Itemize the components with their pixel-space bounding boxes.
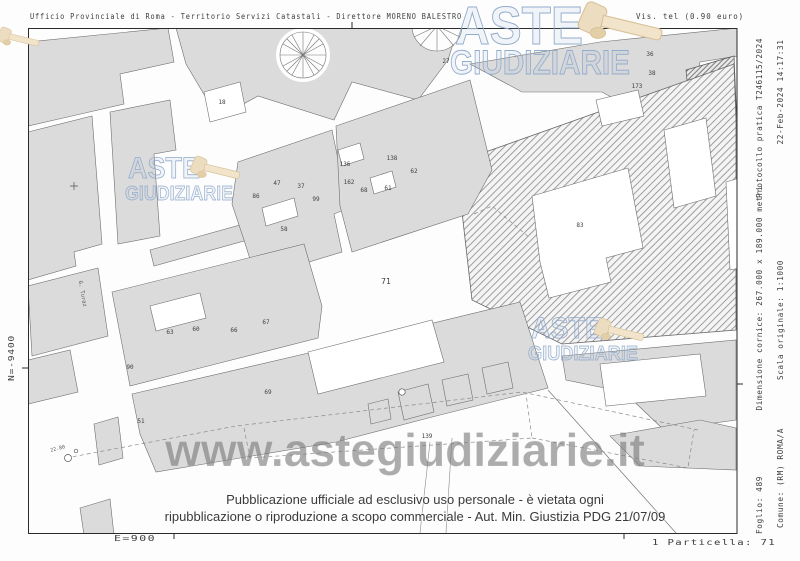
watermark-giudiziarie-text: GIUDIZIARIE bbox=[450, 44, 630, 82]
watermark-aste-text: ASTE bbox=[531, 312, 603, 345]
margin-particella: 1 Particella: 71 bbox=[652, 538, 776, 547]
parcel-label-37: 37 bbox=[297, 183, 305, 190]
parcel-label-83: 83 bbox=[576, 222, 584, 229]
cadastral-map-page: Ufficio Provinciale di Roma - Territorio… bbox=[0, 0, 800, 561]
parcel-label-68: 68 bbox=[360, 187, 368, 194]
parcel-label-60: 60 bbox=[192, 326, 200, 333]
parcel-label-71: 71 bbox=[381, 277, 391, 286]
parcel-label-58: 58 bbox=[280, 226, 288, 233]
parcel-label-66: 66 bbox=[230, 327, 238, 334]
parcel-label-63: 63 bbox=[166, 329, 174, 336]
parcel-label-138: 138 bbox=[387, 155, 398, 162]
margin-foglio: Foglio: 489 bbox=[755, 476, 764, 534]
margin-protocollo: Protocollo pratica T246115/2024 bbox=[755, 38, 764, 198]
margin-scale: Scala originale: 1:1000 bbox=[776, 260, 785, 380]
disclaimer-line1: Pubblicazione ufficiale ad esclusivo uso… bbox=[90, 491, 740, 508]
watermark-giudiziarie-text: GIUDIZIARIE bbox=[125, 183, 233, 205]
margin-comune: Comune: (RM) ROMA/A bbox=[776, 428, 785, 528]
disclaimer: Pubblicazione ufficiale ad esclusivo uso… bbox=[90, 491, 740, 525]
watermark-giudiziarie-text: GIUDIZIARIE bbox=[528, 343, 638, 365]
watermark-aste-text: ASTE bbox=[128, 152, 200, 185]
parcel-label-62: 62 bbox=[410, 168, 418, 175]
margin-date: 22-Feb-2024 14:17:31 bbox=[776, 40, 785, 145]
parcel-label-162: 162 bbox=[344, 179, 355, 186]
gavel-icon bbox=[0, 26, 39, 46]
hatched-parcel bbox=[462, 64, 740, 344]
parcel-label-47: 47 bbox=[273, 180, 281, 187]
parcel-label-69: 69 bbox=[264, 389, 272, 396]
watermark-left: ASTE GIUDIZIARIE bbox=[125, 152, 240, 205]
parcel-label-36: 36 bbox=[646, 51, 654, 58]
parcel-label-86: 86 bbox=[252, 193, 260, 200]
parcel-label-173: 173 bbox=[632, 83, 643, 90]
parcel-label-90: 90 bbox=[126, 364, 134, 371]
parcel-label-99: 99 bbox=[312, 196, 320, 203]
parcel-label-27: 27 bbox=[442, 58, 450, 65]
parcel-label-67: 67 bbox=[262, 319, 270, 326]
map-annotation: 22.80 bbox=[50, 444, 66, 453]
watermark-url: www.astegiudiziarie.it bbox=[164, 424, 645, 476]
header-office: Ufficio Provinciale di Roma - Territorio… bbox=[30, 12, 462, 21]
disclaimer-line2: ripubblicazione o riproduzione a scopo c… bbox=[90, 508, 740, 525]
margin-east-coord: E=900 bbox=[114, 534, 156, 543]
parcel-label-136: 136 bbox=[340, 161, 351, 168]
parcel-label-18: 18 bbox=[218, 99, 226, 106]
margin-cornice: Dimensione cornice: 267.000 x 189.000 me… bbox=[755, 186, 764, 411]
header-visura: Vis. tel (0.90 euro) bbox=[636, 12, 744, 21]
parcel-label-51: 51 bbox=[137, 418, 145, 425]
margin-north-coord: N=-9400 bbox=[7, 335, 16, 381]
parcel-label-61: 61 bbox=[384, 185, 392, 192]
circular-building bbox=[280, 32, 326, 78]
parcel-label-38: 38 bbox=[648, 70, 656, 77]
cadastral-map: Ufficio Provinciale di Roma - Territorio… bbox=[0, 0, 800, 561]
